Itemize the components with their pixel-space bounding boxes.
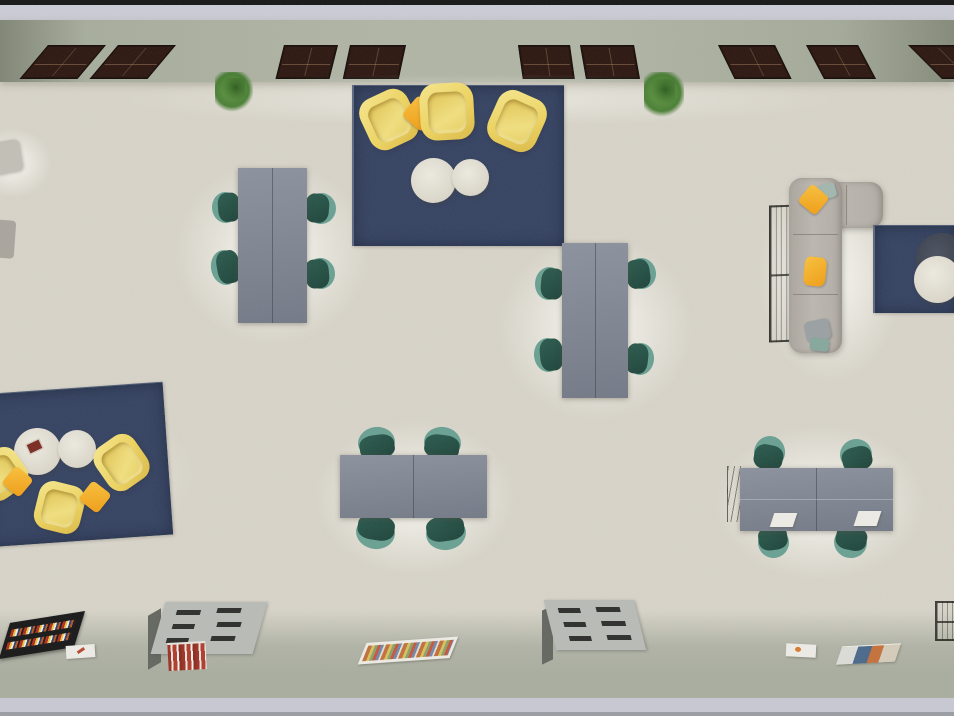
paper-marking: [77, 647, 85, 654]
table-seam: [740, 499, 893, 500]
shelved-books: [167, 641, 206, 671]
round-coffee-table-large: [411, 158, 456, 203]
shelf-slot: [569, 636, 592, 641]
shelf-slot: [216, 608, 241, 613]
shelf-slot: [596, 607, 621, 612]
teal-chair: [424, 514, 468, 552]
low-bookshelf-unit: [542, 600, 642, 664]
paper-marking: [795, 647, 801, 652]
loose-paper: [66, 644, 96, 659]
round-white-table: [914, 256, 954, 303]
study-table-left: [238, 168, 307, 323]
study-table-center: [562, 243, 628, 398]
shelf-slot: [172, 624, 195, 629]
shelf-top-face: [544, 600, 646, 650]
shelf-slot: [216, 622, 241, 627]
sofa-seam: [846, 185, 847, 225]
table-seam: [272, 168, 273, 323]
teal-chair: [625, 342, 655, 377]
shelf-slot: [606, 635, 631, 640]
teal-chair: [305, 257, 337, 290]
teal-chair: [305, 192, 338, 225]
study-table-bottom-center: [340, 455, 487, 518]
potted-plant-left: [215, 72, 253, 112]
yellow-pillow: [803, 256, 828, 287]
table-seam: [595, 243, 596, 398]
laptop-on-desk: [854, 511, 882, 526]
teal-chair: [533, 337, 564, 373]
loose-paper: [786, 643, 817, 658]
round-coffee-table-small: [58, 430, 96, 468]
potted-plant-right: [644, 72, 684, 118]
sofa-seam: [793, 294, 838, 295]
bottom-edge-strip: [0, 712, 954, 716]
shelf-slot: [558, 608, 581, 613]
laptop-on-desk: [770, 513, 798, 527]
low-bookshelf-unit: [148, 602, 264, 668]
teal-chair: [534, 266, 565, 301]
top-wall-ledge: [0, 5, 954, 20]
shelf-slot: [176, 610, 201, 615]
bottom-wall-ledge: [0, 698, 954, 712]
teal-pillow: [809, 337, 830, 353]
teal-chair: [211, 191, 240, 224]
wire-rack-corner: [935, 601, 954, 641]
teal-chair: [625, 256, 658, 291]
teal-chair: [208, 248, 242, 287]
yellow-lounge-chair: [419, 82, 476, 142]
table-seam: [413, 455, 414, 518]
shelf-slot: [563, 622, 586, 627]
magazine: [836, 643, 901, 664]
shelf-slot: [601, 621, 626, 626]
sofa-seam: [793, 234, 838, 235]
round-coffee-table-small: [452, 159, 489, 196]
shelf-slot: [210, 636, 235, 641]
room-render: [0, 0, 954, 716]
teal-chair: [354, 513, 397, 551]
clipped-gray-object: [0, 219, 16, 259]
